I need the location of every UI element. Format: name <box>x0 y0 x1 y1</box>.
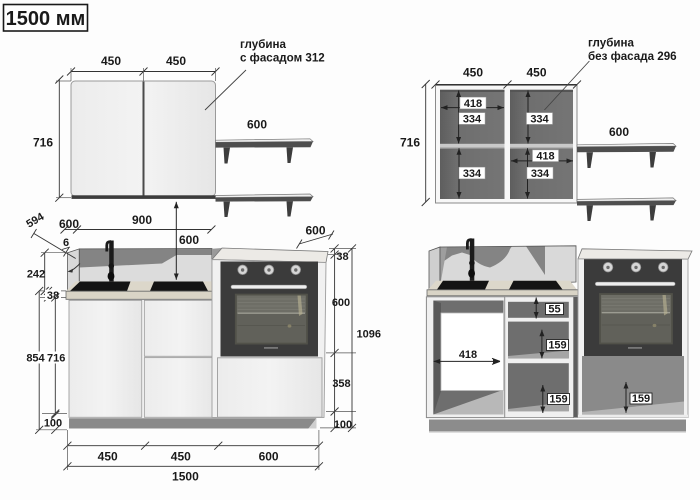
svg-text:глубина: глубина <box>588 37 634 50</box>
svg-text:334: 334 <box>463 168 482 180</box>
svg-text:159: 159 <box>632 393 650 405</box>
svg-text:600: 600 <box>305 224 325 238</box>
svg-text:600: 600 <box>179 233 199 247</box>
svg-text:358: 358 <box>332 378 350 390</box>
svg-text:716: 716 <box>400 136 420 150</box>
svg-text:716: 716 <box>47 353 65 365</box>
svg-text:600: 600 <box>332 297 350 309</box>
svg-text:334: 334 <box>531 168 550 180</box>
svg-text:450: 450 <box>526 66 546 80</box>
svg-text:334: 334 <box>463 113 482 125</box>
svg-text:418: 418 <box>464 98 482 110</box>
svg-text:600: 600 <box>259 450 279 464</box>
svg-text:159: 159 <box>548 340 566 352</box>
svg-text:334: 334 <box>530 113 549 125</box>
svg-text:450: 450 <box>463 66 483 80</box>
svg-text:900: 900 <box>132 213 152 227</box>
svg-text:1500 мм: 1500 мм <box>6 8 86 30</box>
svg-text:418: 418 <box>536 151 554 163</box>
svg-text:1096: 1096 <box>357 329 381 341</box>
svg-text:глубина: глубина <box>240 38 286 51</box>
svg-text:450: 450 <box>171 450 191 464</box>
svg-text:159: 159 <box>549 394 567 406</box>
svg-text:450: 450 <box>166 54 186 68</box>
svg-text:55: 55 <box>548 304 560 316</box>
svg-text:450: 450 <box>98 450 118 464</box>
svg-text:100: 100 <box>44 418 62 430</box>
svg-text:242: 242 <box>27 269 45 281</box>
svg-text:без фасада 296: без фасада 296 <box>588 50 677 63</box>
svg-text:716: 716 <box>33 136 53 150</box>
svg-text:418: 418 <box>459 349 477 361</box>
svg-text:38: 38 <box>336 251 348 263</box>
svg-text:854: 854 <box>26 353 45 365</box>
svg-text:600: 600 <box>609 125 629 139</box>
svg-text:с фасадом 312: с фасадом 312 <box>240 52 325 65</box>
svg-text:600: 600 <box>247 118 267 132</box>
svg-text:450: 450 <box>101 54 121 68</box>
svg-text:1500: 1500 <box>172 470 199 484</box>
svg-text:100: 100 <box>334 419 352 431</box>
svg-text:600: 600 <box>59 217 79 231</box>
